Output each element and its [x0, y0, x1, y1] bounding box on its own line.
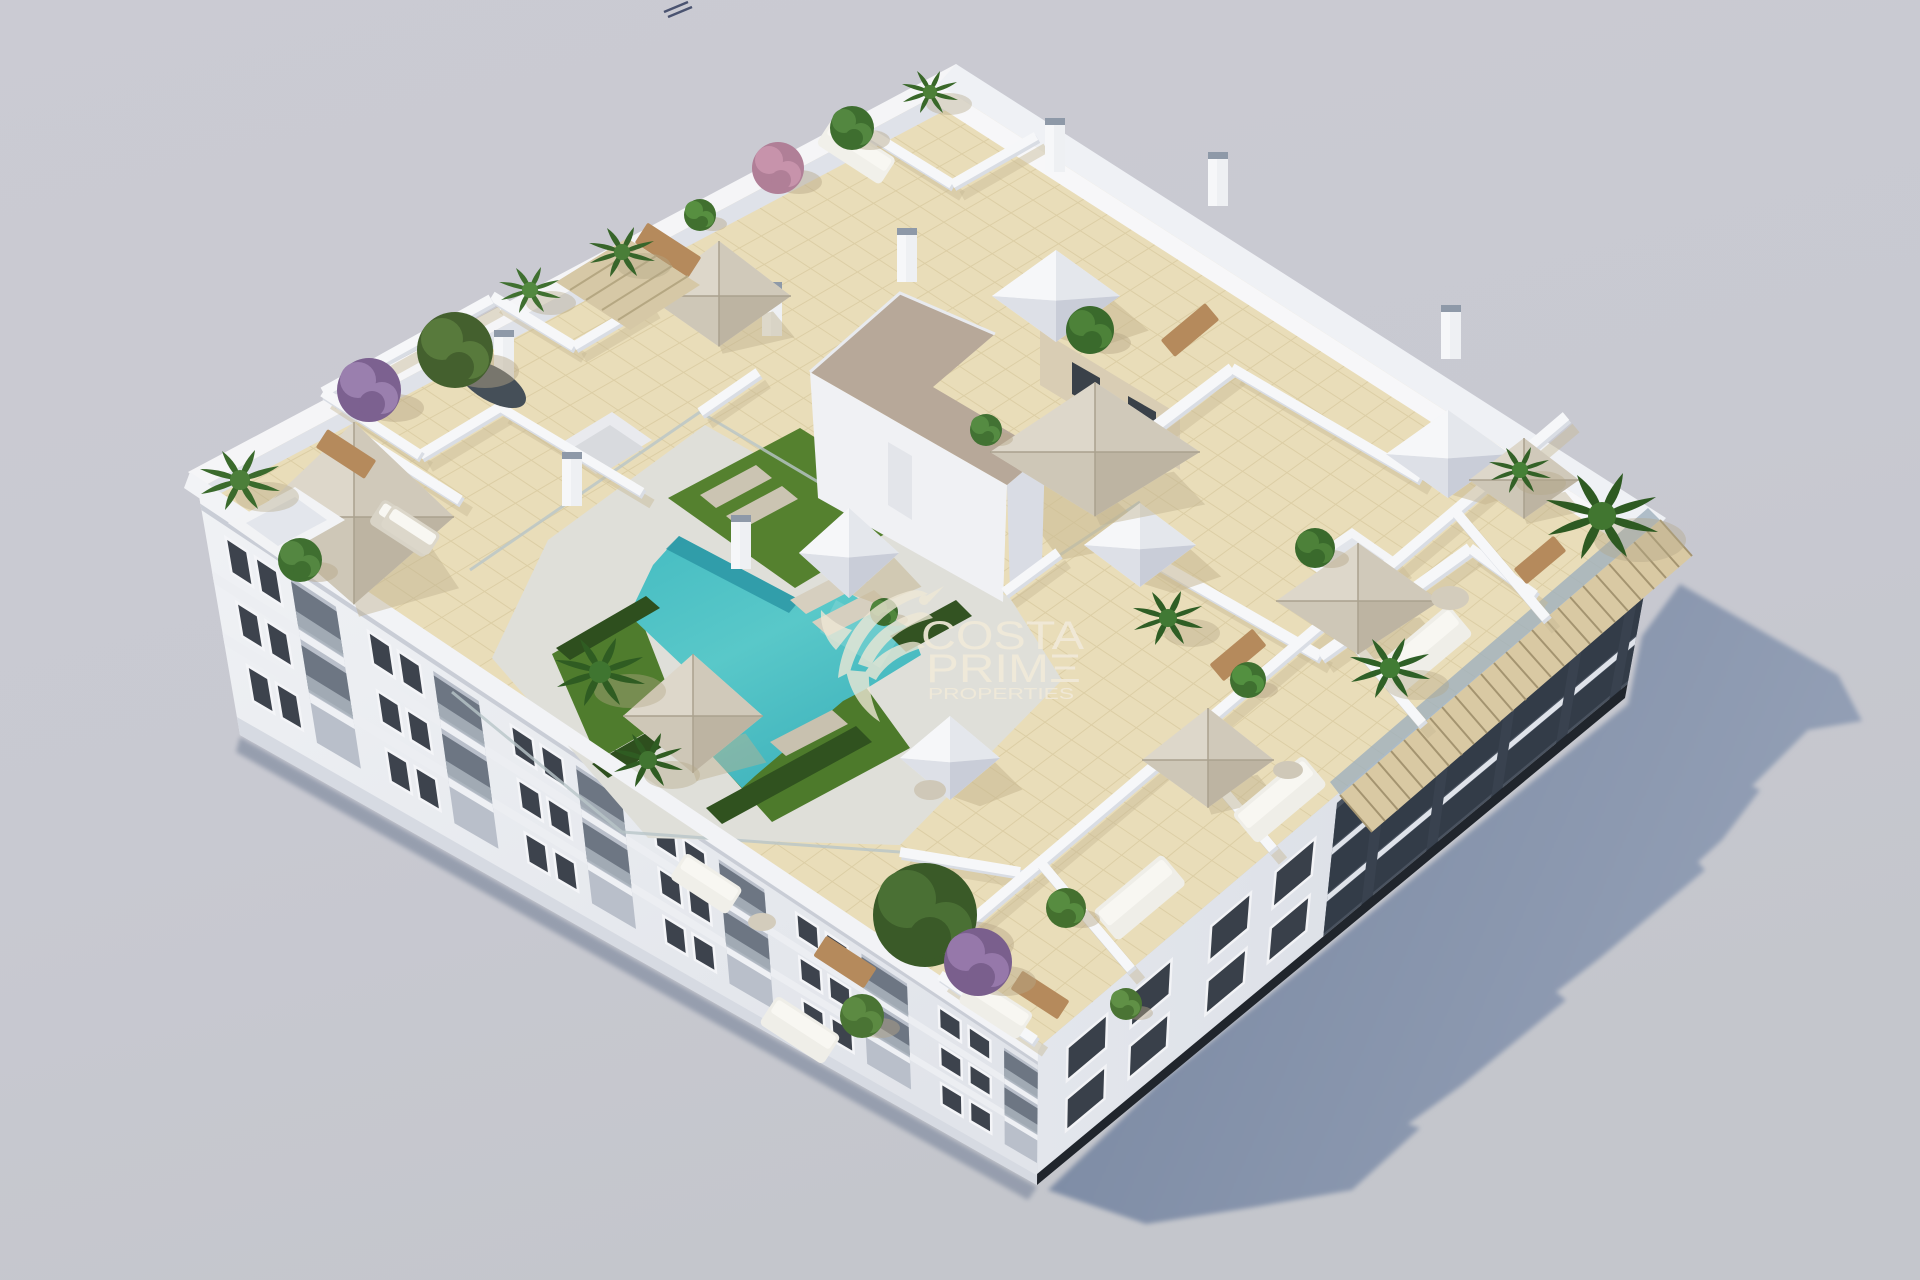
svg-text:PROPERTIES: PROPERTIES [928, 686, 1074, 703]
svg-text:PRIMΞ: PRIMΞ [926, 647, 1081, 691]
